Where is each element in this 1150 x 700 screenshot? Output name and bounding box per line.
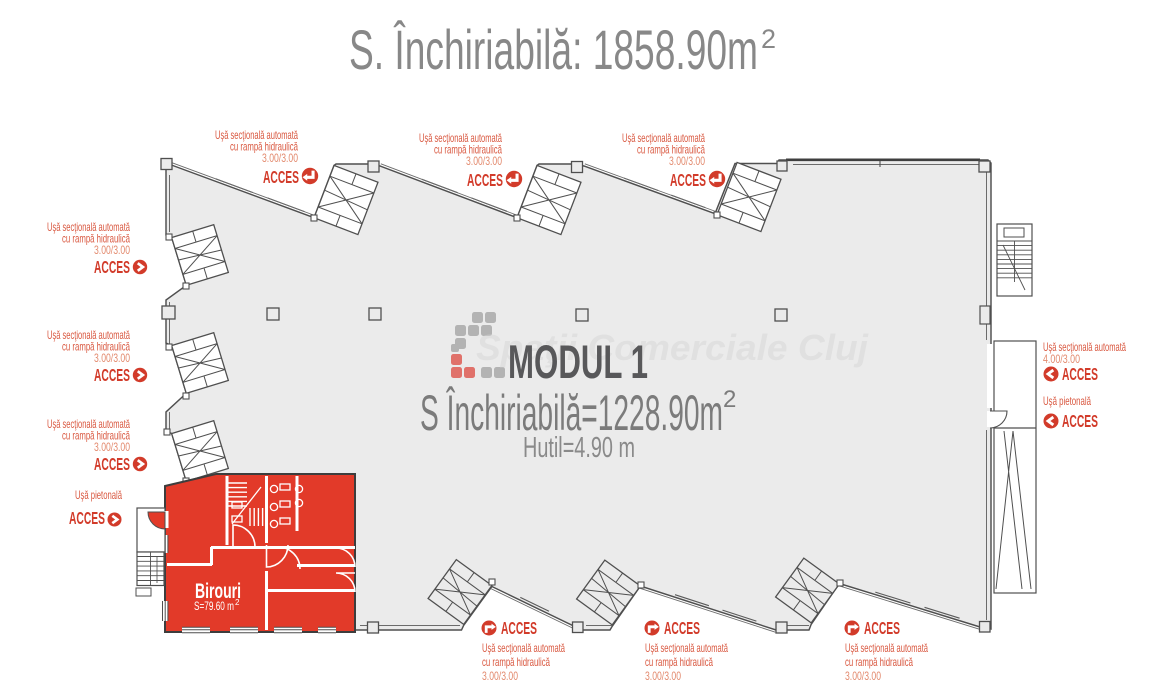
svg-text:ACCES: ACCES bbox=[69, 508, 105, 528]
svg-text:ACCES: ACCES bbox=[1062, 364, 1098, 384]
svg-text:ACCES: ACCES bbox=[94, 454, 130, 474]
svg-text:cu rampă hidraulică: cu rampă hidraulică bbox=[645, 655, 713, 669]
svg-text:Uşă secţională automată: Uşă secţională automată bbox=[845, 641, 928, 655]
svg-text:ACCES: ACCES bbox=[263, 167, 299, 187]
svg-text:Uşă secţională automată: Uşă secţională automată bbox=[645, 641, 728, 655]
svg-text:ACCES: ACCES bbox=[501, 618, 537, 638]
svg-text:ACCES: ACCES bbox=[864, 618, 900, 638]
svg-text:3.00/3.00: 3.00/3.00 bbox=[645, 669, 681, 683]
svg-text:3.00/3.00: 3.00/3.00 bbox=[845, 669, 881, 683]
svg-text:3.00/3.00: 3.00/3.00 bbox=[94, 243, 130, 257]
svg-text:cu rampă hidraulică: cu rampă hidraulică bbox=[482, 655, 550, 669]
svg-text:S=79.60 m: S=79.60 m bbox=[194, 599, 234, 613]
svg-text:ACCES: ACCES bbox=[664, 618, 700, 638]
svg-text:2: 2 bbox=[235, 598, 240, 607]
svg-text:3.00/3.00: 3.00/3.00 bbox=[94, 440, 130, 454]
svg-text:Uşă pietonală: Uşă pietonală bbox=[1043, 394, 1091, 408]
svg-text:MODUL 1: MODUL 1 bbox=[508, 335, 648, 388]
svg-text:3.00/3.00: 3.00/3.00 bbox=[94, 351, 130, 365]
svg-text:3.00/3.00: 3.00/3.00 bbox=[262, 151, 298, 165]
svg-text:ACCES: ACCES bbox=[670, 170, 706, 190]
svg-text:3.00/3.00: 3.00/3.00 bbox=[466, 154, 502, 168]
svg-text:ACCES: ACCES bbox=[94, 365, 130, 385]
svg-text:Uşă secţională automată: Uşă secţională automată bbox=[482, 641, 565, 655]
svg-text:Hutil=4.90 m: Hutil=4.90 m bbox=[523, 432, 635, 464]
svg-text:Uşă pietonală: Uşă pietonală bbox=[75, 488, 122, 502]
svg-text:3.00/3.00: 3.00/3.00 bbox=[482, 669, 518, 683]
svg-text:ACCES: ACCES bbox=[1062, 411, 1098, 431]
svg-text:2: 2 bbox=[761, 24, 776, 54]
svg-text:ACCES: ACCES bbox=[467, 170, 503, 190]
svg-text:S. Închiriabilă: 1858.90m: S. Închiriabilă: 1858.90m bbox=[349, 18, 758, 81]
svg-text:cu rampă hidraulică: cu rampă hidraulică bbox=[845, 655, 913, 669]
svg-text:3.00/3.00: 3.00/3.00 bbox=[669, 154, 705, 168]
svg-text:ACCES: ACCES bbox=[94, 257, 130, 277]
svg-text:2: 2 bbox=[723, 386, 736, 413]
